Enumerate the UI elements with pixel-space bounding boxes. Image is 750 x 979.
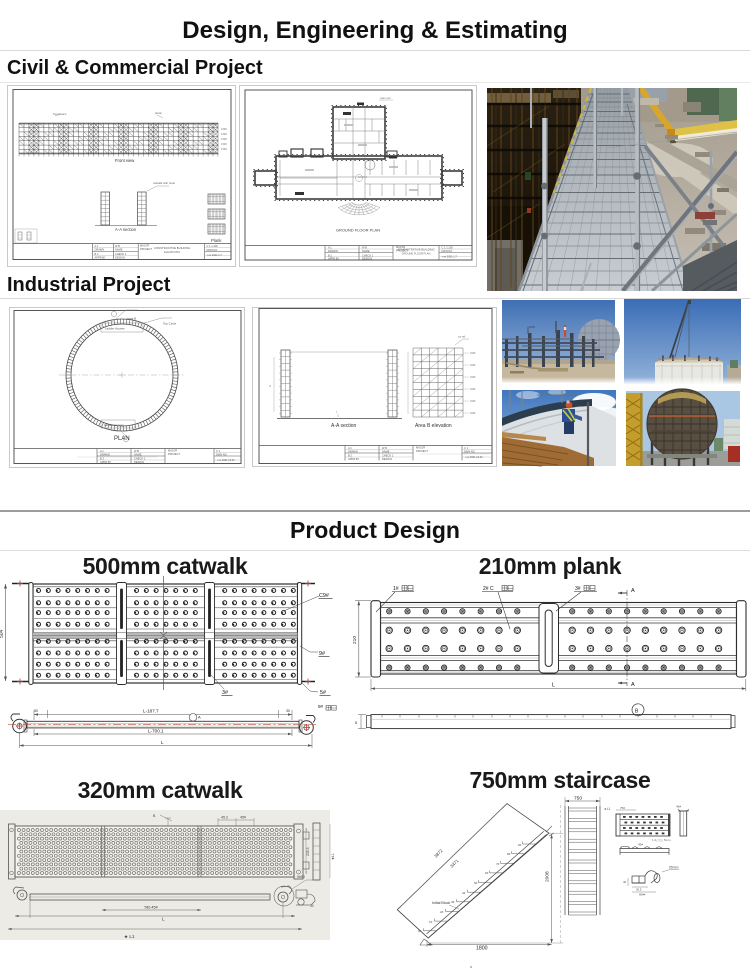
svg-text:3471: 3471 [449,858,460,869]
svg-text:15##: 15## [221,137,227,141]
svg-text:15##: 15## [221,132,227,136]
svg-text:W B: W B [382,446,387,450]
svg-text:APPR BY: APPR BY [328,257,340,261]
svg-text:NAME: NAME [382,450,390,454]
svg-text:GROUND FLOOR PLAN: GROUND FLOOR PLAN [402,252,431,256]
svg-text:plank: plank [155,111,162,115]
svg-text:20##: 20## [470,376,476,379]
svg-text:20##: 20## [470,412,476,415]
svg-text:MAJOR: MAJOR [416,446,425,450]
svg-text:20##: 20## [470,352,476,355]
svg-text:DESIGN: DESIGN [382,457,392,461]
svg-text:main entr: main entr [380,96,391,100]
svg-text:a: a [470,965,472,969]
svg-text:PROJECT: PROJECT [168,452,181,456]
svg-text:1#: 1# [393,586,399,592]
svg-text:8#: 8# [507,852,511,856]
svg-text:DRAWN: DRAWN [95,248,105,252]
svg-text:GROUND FLOOR PLAN: GROUND FLOOR PLAN [336,228,380,233]
svg-text:n w 2021.12.31: n w 2021.12.31 [217,458,235,462]
svg-text:L: L [162,917,165,922]
svg-text:Front view: Front view [115,158,135,163]
svg-text:15##: 15## [221,147,227,151]
svg-text:C 1: C 1 [216,449,221,453]
svg-text:DESIGN: DESIGN [134,460,144,464]
svg-text:NAME: NAME [115,248,123,252]
svg-text:A 1: A 1 [95,244,99,248]
svg-text:n w 2021.1.7: n w 2021.1.7 [442,255,457,259]
svg-text:A 1: A 1 [348,446,352,450]
svg-text:ELEVATIONS: ELEVATIONS [164,250,180,254]
svg-text:DESIGN: DESIGN [115,256,125,260]
svg-text:A 1: A 1 [328,246,332,250]
svg-text:ADMINISTRATIVE BUILDING: ADMINISTRATIVE BUILDING [397,248,434,252]
svg-text:Initial Block: Initial Block [432,901,450,905]
svg-text:3#: 3# [451,900,455,904]
svg-text:210: 210 [352,636,358,644]
svg-text:L: L [161,740,164,745]
svg-text:15##: 15## [221,127,227,131]
svg-text:DWN NO: DWN NO [442,249,453,253]
svg-text:1:2△▽△ 5mm: 1:2△▽△ 5mm [652,838,671,842]
svg-text:catwalk with hook: catwalk with hook [153,181,176,185]
svg-text:MAJOR: MAJOR [140,244,149,248]
svg-text:45#: 45# [638,843,643,847]
svg-text:APPR BY: APPR BY [348,457,360,461]
svg-text:MAJOR: MAJOR [168,449,177,453]
svg-text:9#: 9# [319,651,325,657]
svg-text:5#: 5# [474,881,478,885]
svg-text:W B: W B [115,244,120,248]
svg-text:★ L1: ★ L1 [124,934,135,939]
svg-text:6#: 6# [485,871,489,875]
svg-text:780.45#: 780.45# [144,906,159,910]
svg-text:3#: 3# [575,586,581,592]
svg-text:C 1 1:100: C 1 1:100 [442,246,454,250]
svg-text:A: A [631,588,635,594]
svg-text:504: 504 [0,629,5,638]
svg-text:C 1 1:100: C 1 1:100 [207,244,219,248]
svg-text:1#: 1# [429,920,433,924]
svg-text:3872: 3872 [433,848,444,859]
svg-text:B 2: B 2 [348,454,352,458]
svg-text:65mm: 65mm [669,866,679,870]
svg-text:B 2: B 2 [95,252,99,256]
svg-text:CHECK 1: CHECK 1 [115,252,127,256]
svg-text:750: 750 [620,806,625,810]
svg-text:750: 750 [574,796,582,802]
svg-text:A: A [198,715,201,720]
svg-text:C 1: C 1 [464,446,469,450]
svg-text:H: H [268,385,272,387]
svg-text:7#: 7# [496,862,500,866]
svg-text:9#: 9# [518,843,522,847]
svg-text:5#: 5# [320,690,326,696]
svg-text:45#: 45# [676,805,681,809]
svg-text:Ladder Access: Ladder Access [105,327,125,331]
svg-text:L-187.7: L-187.7 [143,709,159,714]
svg-text:★L1: ★L1 [331,853,335,860]
svg-text:NAME: NAME [362,249,370,253]
svg-text:20##: 20## [470,400,476,403]
svg-text:45#: 45# [240,816,246,820]
svg-text:Area B elevation: Area B elevation [415,423,452,429]
svg-text:5: 5 [355,720,358,725]
svg-text:top rail: top rail [458,336,466,339]
svg-text:3#: 3# [222,690,228,696]
svg-text:DRAWN: DRAWN [328,249,338,253]
svg-text:DESIGN: DESIGN [362,257,372,261]
svg-text:0#: 0# [418,929,422,933]
svg-text:DRAWN: DRAWN [348,450,358,454]
svg-text:20##: 20## [470,364,476,367]
svg-text:15##: 15## [221,142,227,146]
svg-text:30: 30 [286,709,290,713]
svg-text:Area B: Area B [127,317,136,321]
svg-text:B: B [635,708,639,714]
svg-text:CONSTRUCTIVE BUILDING: CONSTRUCTIVE BUILDING [154,246,190,250]
svg-text:n w 2021.1.7: n w 2021.1.7 [207,253,222,257]
svg-text:2#: 2# [440,910,444,914]
svg-text:PROJECT: PROJECT [416,449,429,453]
svg-text:W B: W B [134,449,139,453]
svg-text:2# C: 2# C [483,586,494,592]
svg-text:30.5: 30.5 [636,888,642,892]
svg-text:APPR BY: APPR BY [100,460,112,464]
svg-text:30: 30 [34,709,38,713]
svg-text:CHECK 1: CHECK 1 [382,454,394,458]
svg-text:40: 40 [623,880,627,884]
svg-text:A: A [631,682,635,688]
svg-text:A-A section: A-A section [331,423,357,429]
svg-text:L: L [552,683,555,689]
svg-text:W B: W B [362,246,367,250]
svg-text:front brace: front brace [53,112,67,116]
svg-text:A-A section: A-A section [115,227,137,232]
svg-text:235.5: 235.5 [306,847,310,856]
svg-text:2008: 2008 [545,871,551,882]
svg-text:20##: 20## [470,388,476,391]
svg-text:APPR BY: APPR BY [95,256,107,260]
svg-text:Top Circle: Top Circle [163,322,177,326]
svg-text:60##: 60## [639,893,646,897]
svg-text:DWN NO: DWN NO [216,453,227,457]
svg-text:DWN NO: DWN NO [464,450,475,454]
svg-text:DRAWN: DRAWN [100,453,110,457]
svg-text:45.2: 45.2 [221,816,228,820]
svg-text:Plank: Plank [211,238,222,243]
svg-text:NAME: NAME [134,453,142,457]
svg-text:Ladder Access: Ladder Access [104,423,124,427]
svg-text:★L1: ★L1 [604,807,611,811]
svg-text:PLAN: PLAN [114,436,130,442]
svg-text:C9#: C9# [319,593,329,599]
svg-text:DWN NO: DWN NO [207,248,218,252]
svg-text:1800: 1800 [476,946,488,952]
svg-text:50: 50 [310,904,314,908]
svg-text:9#: 9# [318,704,324,709]
svg-text:n w 2021.12.31: n w 2021.12.31 [465,455,483,459]
svg-text:PROJECT: PROJECT [140,247,153,251]
svg-text:4#: 4# [462,891,466,895]
svg-text:9#50: 9#50 [297,875,305,879]
svg-text:A 1: A 1 [100,449,104,453]
svg-text:L-700.1: L-700.1 [148,729,164,734]
